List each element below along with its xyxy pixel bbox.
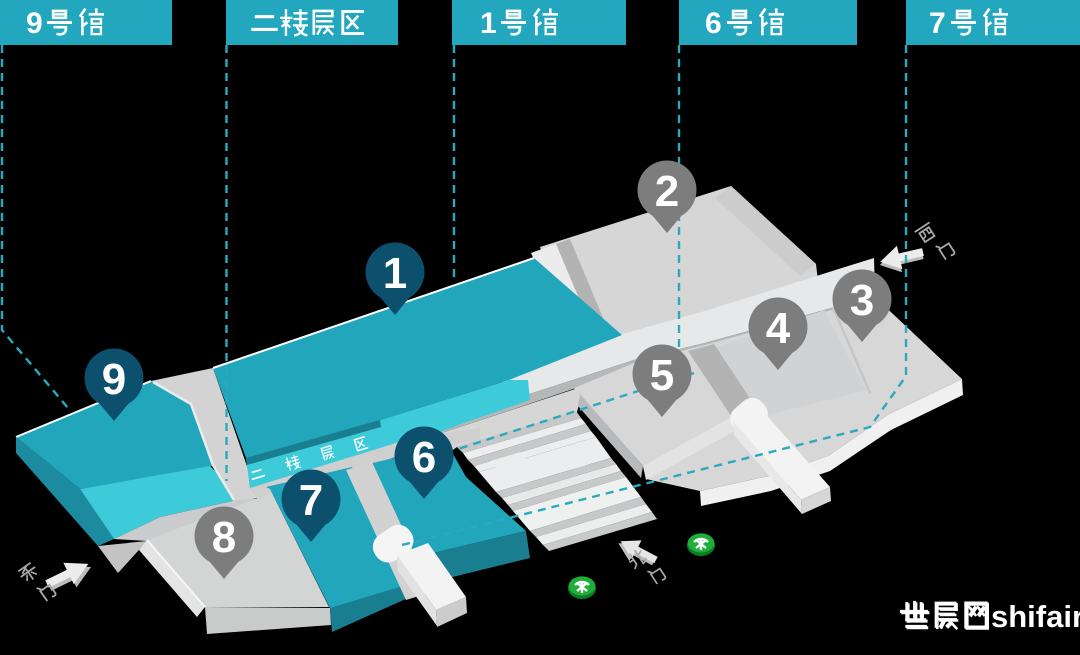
svg-text:shifair.: shifair. <box>991 599 1080 634</box>
svg-text:6: 6 <box>412 433 436 482</box>
svg-text:1: 1 <box>383 249 407 298</box>
svg-text:9: 9 <box>26 7 43 40</box>
svg-text:1: 1 <box>480 7 497 40</box>
svg-text:8: 8 <box>212 513 236 562</box>
svg-text:7: 7 <box>929 7 946 40</box>
svg-text:5: 5 <box>650 351 674 400</box>
svg-text:3: 3 <box>850 276 874 325</box>
svg-text:9: 9 <box>102 355 126 404</box>
svg-text:2: 2 <box>655 167 679 216</box>
svg-text:6: 6 <box>705 7 722 40</box>
svg-text:4: 4 <box>766 304 791 353</box>
svg-text:7: 7 <box>299 476 323 525</box>
